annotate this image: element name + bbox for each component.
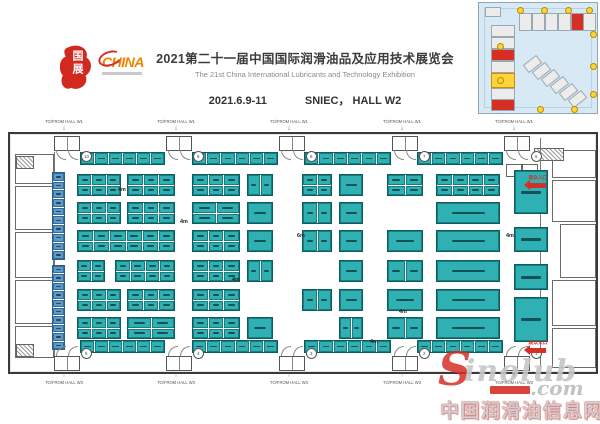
booth — [53, 216, 64, 224]
inset-hall — [583, 13, 596, 31]
booth — [318, 186, 332, 196]
hall-link-bottom: ↑TO/FROM HALL W3 — [244, 373, 334, 387]
booth — [217, 214, 240, 224]
inset-hall — [532, 13, 545, 31]
booth-block — [115, 260, 175, 282]
booth — [78, 261, 91, 271]
booth — [151, 153, 164, 164]
door-swing-icon — [394, 346, 404, 356]
booth-block — [247, 230, 273, 252]
booth — [160, 272, 174, 282]
door-swing-icon — [168, 150, 178, 160]
booth — [127, 231, 142, 241]
booth — [261, 175, 273, 195]
booth — [94, 231, 109, 241]
booth — [209, 231, 224, 241]
booth-block — [77, 260, 105, 282]
booth — [303, 175, 317, 185]
booth — [159, 203, 174, 213]
door-swing-icon — [293, 346, 303, 356]
booth — [193, 203, 216, 213]
door-vestibule-bottom — [504, 356, 530, 371]
brand-underline — [102, 72, 142, 75]
booth — [388, 318, 405, 338]
booth — [144, 175, 159, 185]
door-swing-icon — [180, 150, 190, 160]
door-swing-icon — [168, 346, 178, 356]
hall-link-top: TO/FROM HALL W1↓ — [357, 117, 447, 131]
booth — [144, 301, 159, 311]
door-vestibule-bottom — [54, 356, 80, 371]
booth — [159, 301, 174, 311]
booth — [193, 261, 208, 271]
booth — [340, 318, 351, 338]
booth — [92, 272, 105, 282]
booth — [207, 341, 220, 352]
booth — [131, 272, 145, 282]
booth — [453, 175, 468, 185]
booth — [248, 203, 272, 223]
gate-number-top: 6 — [531, 151, 542, 162]
booth — [92, 301, 105, 311]
door-vestibule-top — [166, 136, 192, 151]
booth — [224, 301, 239, 311]
booth-block — [247, 260, 273, 282]
booth-strip-top — [304, 152, 391, 165]
booth-block — [247, 317, 273, 339]
booth — [303, 186, 317, 196]
door-swing-icon — [281, 150, 291, 160]
hall-link-top: TO/FROM HALL W1↓ — [19, 117, 109, 131]
booth-block — [192, 174, 240, 196]
hall-link-bottom: ↑TO/FROM HALL W3 — [19, 373, 109, 387]
booth — [128, 290, 143, 300]
side-room — [15, 280, 54, 324]
booth — [53, 199, 64, 207]
booth — [109, 341, 122, 352]
entrance-arrow-icon — [530, 183, 546, 188]
booth — [78, 290, 91, 300]
booth — [146, 272, 160, 282]
booth — [334, 341, 347, 352]
booth — [236, 153, 249, 164]
aisle-width-label: 6m — [297, 232, 305, 238]
booth — [318, 175, 332, 185]
booth — [128, 329, 151, 339]
booth — [143, 242, 158, 252]
booth — [318, 203, 332, 223]
gate-number-top: 10 — [81, 151, 92, 162]
booth — [78, 242, 93, 252]
door-swing-icon — [180, 346, 190, 356]
hall-link-bottom: ↑TO/FROM HALL W3 — [469, 373, 559, 387]
booth — [303, 203, 317, 223]
booth — [388, 186, 405, 196]
booth-block — [302, 230, 332, 252]
booth — [53, 283, 64, 290]
booth — [209, 290, 224, 300]
booth — [159, 186, 174, 196]
booth — [53, 316, 64, 323]
booth — [193, 329, 208, 339]
booth — [53, 182, 64, 190]
inset-hall — [519, 13, 532, 31]
booth — [92, 214, 105, 224]
visitor-entrance: 观众入口 — [515, 337, 561, 353]
booth-block — [127, 202, 175, 224]
booth — [475, 153, 488, 164]
booth — [53, 208, 64, 216]
booth-block — [77, 317, 121, 339]
booth — [53, 333, 64, 340]
booth — [209, 261, 224, 271]
booth — [515, 265, 547, 289]
booth — [340, 175, 362, 195]
booth — [461, 153, 474, 164]
booth — [78, 186, 91, 196]
booth — [209, 329, 224, 339]
booth — [159, 290, 174, 300]
booth — [303, 290, 317, 310]
inset-gate-dot — [565, 7, 572, 14]
booth — [128, 186, 143, 196]
booth — [453, 186, 468, 196]
booth — [264, 341, 277, 352]
inset-hall — [491, 99, 515, 111]
booth — [224, 242, 239, 252]
door-vestibule-bottom — [279, 356, 305, 371]
booth — [264, 153, 277, 164]
exhibition-floorplan-poster: 国展 CHINA 2021第二十一届中国国际润滑油品及应用技术展览会 The 2… — [0, 0, 600, 424]
booth — [53, 325, 64, 332]
booth — [261, 261, 273, 281]
booth-block — [387, 317, 423, 339]
side-room — [560, 224, 596, 278]
door-swing-icon — [68, 346, 78, 356]
booth-block — [436, 174, 500, 196]
booth-block — [339, 317, 363, 339]
booth — [193, 301, 208, 311]
venue-overview-map — [478, 2, 598, 114]
booth — [340, 231, 362, 251]
booth — [144, 203, 159, 213]
booth-large-right — [514, 297, 548, 342]
booth — [437, 290, 499, 310]
door-vestibule-top — [392, 136, 418, 151]
booth — [352, 318, 363, 338]
booth-strip-bottom — [80, 340, 165, 353]
booth — [377, 341, 390, 352]
booth-column-left — [52, 172, 65, 260]
booth — [489, 341, 502, 352]
booth-block — [302, 289, 332, 311]
booth-block — [192, 289, 240, 311]
booth — [53, 300, 64, 307]
door-vestibule-bottom — [392, 356, 418, 371]
booth — [92, 290, 105, 300]
booth — [53, 243, 64, 251]
booth-block — [127, 317, 175, 339]
aisle-width-label: 4m — [118, 186, 126, 192]
booth-block — [339, 289, 363, 311]
booth — [95, 153, 108, 164]
booth — [159, 242, 174, 252]
booth — [319, 153, 332, 164]
side-room — [552, 280, 596, 326]
booth — [209, 175, 224, 185]
booth — [92, 318, 105, 328]
booth-block — [339, 260, 363, 282]
booth — [53, 190, 64, 198]
booth-block — [192, 230, 240, 252]
gate-number-top: 7 — [419, 151, 430, 162]
booth — [461, 341, 474, 352]
booth — [446, 153, 459, 164]
booth — [209, 186, 224, 196]
booth-column-left — [52, 265, 65, 350]
booth — [437, 175, 452, 185]
booth-block — [436, 230, 500, 252]
booth — [107, 318, 120, 328]
booth — [159, 214, 174, 224]
gate-number-bottom: 3 — [306, 348, 317, 359]
booth-block — [127, 289, 175, 311]
booth — [209, 301, 224, 311]
booth-block — [192, 317, 240, 339]
booth — [193, 175, 208, 185]
booth — [92, 329, 105, 339]
booth — [53, 173, 64, 181]
booth — [236, 341, 249, 352]
door-swing-icon — [506, 150, 516, 160]
watermark-badge — [490, 386, 530, 394]
booth — [144, 214, 159, 224]
booth — [107, 214, 120, 224]
visitor-entrance: 观众入口 — [515, 172, 561, 188]
booth-block — [77, 289, 121, 311]
aisle-width-label: 4m — [370, 338, 378, 344]
booth — [248, 318, 272, 338]
inset-gate-dot — [537, 106, 544, 113]
exhibition-title-en: The 21st China International Lubricants … — [140, 70, 470, 79]
booth-block — [339, 174, 363, 196]
booth — [388, 231, 422, 251]
booth-strip-bottom — [417, 340, 503, 353]
hall-link-top: TO/FROM HALL W1↓ — [469, 117, 559, 131]
inset-hall — [491, 61, 515, 73]
booth-block — [192, 202, 240, 224]
booth — [406, 318, 423, 338]
booth — [319, 341, 332, 352]
booth — [348, 153, 361, 164]
stairs-area — [16, 344, 34, 357]
booth — [78, 203, 91, 213]
booth — [144, 186, 159, 196]
booth — [123, 153, 136, 164]
booth — [78, 318, 91, 328]
booth — [406, 175, 423, 185]
booth-strip-bottom — [192, 340, 278, 353]
door-vestibule-top — [279, 136, 305, 151]
booth — [143, 231, 158, 241]
booth — [193, 242, 208, 252]
inset-hall — [491, 49, 515, 61]
inset-hall — [545, 13, 558, 31]
booth-block — [436, 260, 500, 282]
booth — [128, 301, 143, 311]
booth — [107, 203, 120, 213]
inset-hall — [558, 13, 571, 31]
exhibition-title-cn: 2021第二十一届中国国际润滑油品及应用技术展览会 — [140, 48, 470, 67]
door-swing-icon — [406, 346, 416, 356]
booth — [437, 203, 499, 223]
booth — [159, 175, 174, 185]
booth-large-right — [514, 227, 548, 252]
booth-block — [387, 174, 423, 196]
booth — [193, 318, 208, 328]
booth — [209, 318, 224, 328]
booth — [469, 186, 484, 196]
gate-number-top: 9 — [193, 151, 204, 162]
booth — [160, 261, 174, 271]
inset-hall — [485, 7, 501, 17]
booth — [116, 261, 130, 271]
booth — [109, 153, 122, 164]
door-vestibule-top — [54, 136, 80, 151]
inset-gate-dot — [517, 7, 524, 14]
booth — [469, 175, 484, 185]
booth — [92, 261, 105, 271]
door-swing-icon — [281, 346, 291, 356]
booth — [94, 242, 109, 252]
booth — [221, 153, 234, 164]
door-vestibule-bottom — [166, 356, 192, 371]
booth — [248, 231, 272, 251]
booth — [53, 234, 64, 242]
booth — [146, 261, 160, 271]
stairs-area — [16, 156, 34, 169]
booth — [151, 341, 164, 352]
floor-plan: 105948372614m4m6m4m4m4m4m观众入口观众入口 — [8, 132, 598, 374]
booth — [152, 329, 175, 339]
booth — [127, 242, 142, 252]
door-swing-icon — [394, 150, 404, 160]
hall-link-bottom: ↑TO/FROM HALL W3 — [357, 373, 447, 387]
booth — [489, 153, 502, 164]
aisle-width-label: 4m — [232, 276, 240, 282]
booth — [388, 175, 405, 185]
booth — [248, 261, 260, 281]
booth-block — [247, 202, 273, 224]
hall-link-bottom: ↑TO/FROM HALL W3 — [131, 373, 221, 387]
inset-gate-dot — [497, 43, 504, 50]
booth — [377, 153, 390, 164]
booth — [362, 153, 375, 164]
watermark-site-name-cn: 中国润滑油信息网 — [440, 396, 600, 423]
brand-wordmark: CHINA — [102, 54, 144, 70]
booth — [207, 153, 220, 164]
booth — [475, 341, 488, 352]
booth-block — [339, 230, 363, 252]
booth — [340, 261, 362, 281]
side-room — [15, 232, 54, 278]
booth — [515, 228, 547, 251]
booth — [432, 341, 445, 352]
booth — [303, 231, 317, 251]
gate-number-bottom: 4 — [193, 348, 204, 359]
booth — [116, 272, 130, 282]
booth-strip-top — [80, 152, 165, 165]
booth — [137, 341, 150, 352]
booth-block — [77, 174, 121, 196]
booth — [78, 231, 93, 241]
booth — [92, 203, 105, 213]
booth-block — [127, 174, 175, 196]
booth — [224, 329, 239, 339]
booth — [128, 318, 151, 328]
date-venue-line: 2021.6.9-11SNIEC， HALL W2 — [140, 92, 470, 108]
booth — [78, 272, 91, 282]
booth-strip-top — [192, 152, 278, 165]
booth-block — [339, 202, 363, 224]
booth — [217, 203, 240, 213]
inset-gate-dot — [590, 63, 597, 70]
booth-block — [247, 174, 273, 196]
inset-hall — [491, 25, 515, 37]
booth-block — [77, 202, 121, 224]
booth — [128, 203, 143, 213]
booth — [78, 329, 91, 339]
inset-gate-dot — [586, 7, 593, 14]
booth — [221, 341, 234, 352]
door-vestibule-top — [504, 136, 530, 151]
booth-block — [436, 289, 500, 311]
exhibition-venue: SNIEC， HALL W2 — [305, 95, 401, 107]
booth — [92, 186, 105, 196]
gate-number-bottom: 2 — [419, 348, 430, 359]
aisle-width-label: 4m — [399, 308, 407, 314]
booth — [107, 329, 120, 339]
booth — [437, 186, 452, 196]
exhibition-date: 2021.6.9-11 — [209, 95, 267, 107]
booth — [432, 153, 445, 164]
inset-gate-dot — [590, 31, 597, 38]
booth — [193, 272, 208, 282]
booth — [53, 308, 64, 315]
booth-block — [436, 317, 500, 339]
booth — [193, 186, 208, 196]
booth — [250, 341, 263, 352]
booth-large-right — [514, 264, 548, 290]
booth — [107, 175, 120, 185]
inset-gate-dot — [571, 106, 578, 113]
booth — [340, 290, 362, 310]
booth — [224, 175, 239, 185]
door-swing-icon — [293, 150, 303, 160]
hall-link-top: TO/FROM HALL W1↓ — [131, 117, 221, 131]
booth — [193, 290, 208, 300]
booth — [318, 231, 332, 251]
booth — [388, 261, 405, 281]
inset-gate-dot — [590, 91, 597, 98]
booth — [107, 290, 120, 300]
side-room — [15, 186, 54, 230]
booth — [515, 298, 547, 341]
booth — [388, 290, 422, 310]
booth — [248, 175, 260, 195]
booth — [53, 266, 64, 273]
booth-block — [302, 174, 332, 196]
